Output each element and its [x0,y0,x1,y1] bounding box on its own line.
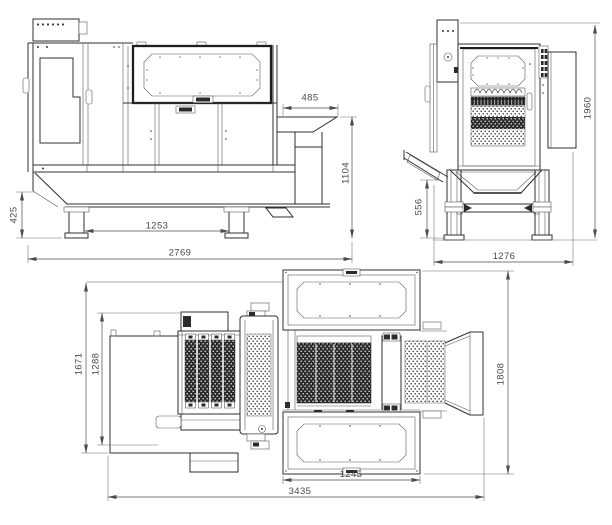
logo-script [474,89,522,93]
dim-base-height: 425 [9,192,63,238]
tank-sump [190,453,238,472]
side-handle-left [23,78,29,93]
control-box-connector [79,22,87,34]
dim-outlet-height-value: 1104 [341,162,352,184]
foot [225,233,248,238]
infeed-belt-strips [185,340,235,402]
dim-leg-spacing-value: 1253 [146,221,169,232]
door-latch [86,90,92,104]
discharge-hood [277,117,337,132]
infeed-chute-hatch [407,155,440,180]
roller-drum [382,336,401,409]
front-view: 1960 556 1276 [404,20,600,266]
dim-frame-depth-value: 1288 [91,353,102,376]
base-frame [66,204,330,207]
dim-right-depth-value: 1808 [496,363,507,386]
dim-infeed-height: 556 [414,180,447,238]
body-right-edge [273,45,277,165]
side-dimensions: 485 1104 425 1253 2769 [9,93,358,264]
dim-overall-length: 2769 [28,242,352,263]
discharge-flap [266,208,293,217]
plan-view: 1671 1288 1808 1245 3435 [74,269,515,501]
front-leg-left [444,170,464,240]
hopper [450,170,542,193]
door-slot-handle [527,93,532,110]
infeed-drive-motor [156,416,181,428]
dim-plan-overall-length-value: 3435 [289,486,312,497]
outfeed-belt-perforated [405,341,445,403]
inspection-window [144,54,260,96]
foot [532,235,552,240]
discharge-duct [295,132,322,204]
side-leg-right [224,207,249,238]
base-band [33,165,295,172]
stepped-panel [40,58,80,143]
plan-machine [86,269,483,475]
tank-slope [35,173,67,204]
door-window-screws [472,57,530,84]
dim-overall-depth-value: 1671 [74,353,85,376]
dim-hood-width-value: 485 [301,93,318,104]
vent-slit-band [471,97,525,105]
dim-overall-length-value: 2769 [169,248,192,259]
front-machine-body [404,20,597,240]
inspection-window-frame [133,46,271,103]
side-leg-left [64,207,89,238]
top-cover-panel [283,269,420,330]
dim-base-height-value: 425 [9,206,20,223]
bridge-perforated-plate [247,334,271,416]
dim-panel-width-value: 1245 [340,469,363,480]
side-machine-body [23,19,337,238]
dim-overall-width-value: 1276 [493,251,516,262]
column-handle [425,86,430,102]
technical-drawing-sheet: 485 1104 425 1253 2769 [0,0,612,525]
dim-outlet-height: 1104 [340,117,357,238]
foot [65,233,88,238]
front-leg-right [532,170,552,240]
dim-infeed-height-value: 556 [414,198,425,215]
dim-hood-width: 485 [283,93,338,117]
side-view: 485 1104 425 1253 2769 [9,19,358,263]
door-window [471,56,525,86]
machine-orthographic-views: 485 1104 425 1253 2769 [0,0,612,525]
infeed-chute [404,150,448,182]
foot [444,235,464,240]
dim-leg-spacing: 1253 [85,221,229,232]
window-screws [146,56,257,93]
main-conveyor-tunnel [283,325,445,415]
control-box [33,19,79,41]
transfer-bridge [240,303,278,449]
wing-panel [548,52,576,148]
dim-overall-height-value: 1960 [583,97,594,120]
perforated-dark-band [471,117,525,129]
bottom-cover-panel [283,412,420,475]
